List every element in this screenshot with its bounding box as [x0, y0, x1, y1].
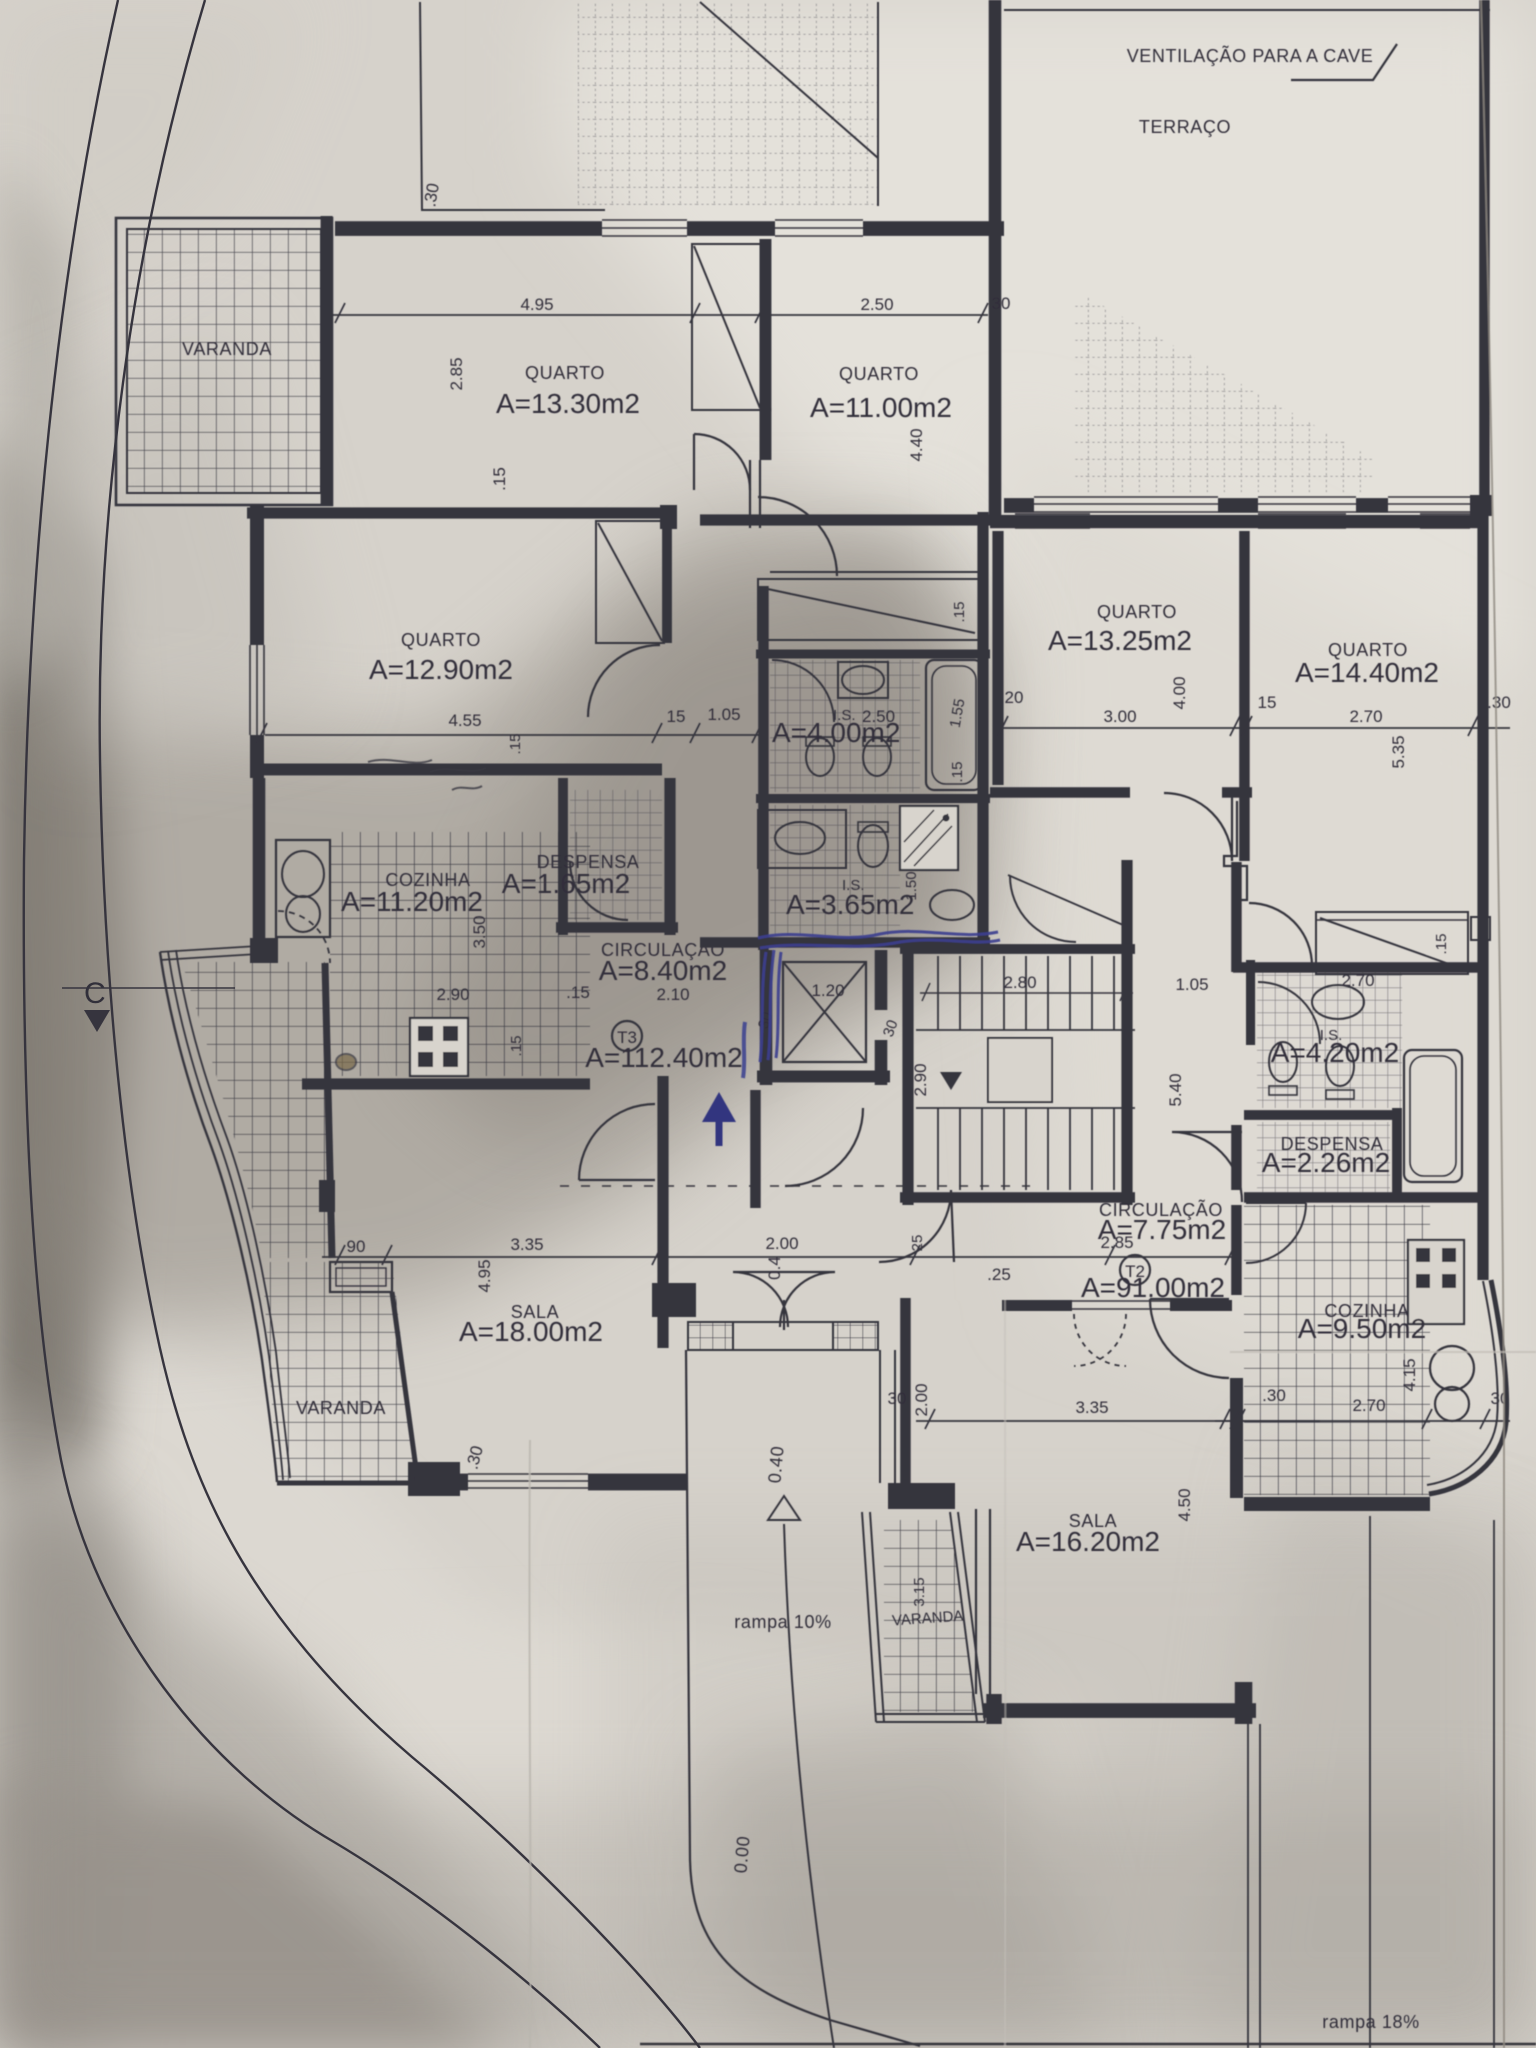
svg-text:2.00: 2.00: [765, 1234, 798, 1253]
svg-text:3.35: 3.35: [1075, 1398, 1108, 1417]
svg-text:20: 20: [1005, 688, 1024, 707]
svg-text:15: 15: [1258, 693, 1277, 712]
svg-text:A=12.90m2: A=12.90m2: [369, 654, 513, 685]
svg-text:2.90: 2.90: [911, 1063, 930, 1096]
svg-text:3.00: 3.00: [1103, 707, 1136, 726]
svg-text:.15: .15: [508, 1036, 525, 1057]
svg-text:.15: .15: [1433, 934, 1450, 955]
svg-text:.30: .30: [1487, 693, 1511, 712]
svg-text:30: 30: [888, 1389, 907, 1408]
svg-text:.15: .15: [490, 467, 509, 491]
svg-text:.15: .15: [507, 734, 524, 755]
svg-text:A=8.40m2: A=8.40m2: [599, 955, 727, 986]
svg-text:A=3.65m2: A=3.65m2: [786, 889, 914, 920]
svg-text:30: 30: [992, 294, 1011, 313]
svg-text:QUARTO: QUARTO: [525, 363, 605, 383]
svg-text:A=13.25m2: A=13.25m2: [1048, 625, 1192, 656]
svg-text:2.70: 2.70: [1352, 1396, 1385, 1415]
svg-text:1.20: 1.20: [811, 981, 844, 1000]
svg-text:A=112.40m2: A=112.40m2: [585, 1042, 743, 1073]
svg-text:2.10: 2.10: [656, 985, 689, 1004]
svg-text:rampa 18%: rampa 18%: [1322, 2012, 1419, 2032]
svg-text:2.70: 2.70: [1349, 707, 1382, 726]
svg-text:QUARTO: QUARTO: [1097, 602, 1177, 622]
svg-text:0.40: 0.40: [764, 1445, 787, 1484]
svg-text:2.00: 2.00: [912, 1383, 931, 1416]
svg-text:TERRAÇO: TERRAÇO: [1139, 117, 1231, 137]
svg-text:2.50: 2.50: [860, 295, 893, 314]
svg-text:3.35: 3.35: [510, 1235, 543, 1254]
svg-text:QUARTO: QUARTO: [401, 630, 481, 650]
svg-text:4.95: 4.95: [475, 1259, 494, 1292]
svg-text:0.00: 0.00: [730, 1835, 753, 1874]
svg-text:A=11.00m2: A=11.00m2: [810, 392, 952, 423]
svg-text:.30: .30: [1262, 1386, 1286, 1405]
svg-text:1.05: 1.05: [1175, 975, 1208, 994]
svg-text:0.4: 0.4: [765, 1256, 784, 1280]
svg-text:5.35: 5.35: [1389, 735, 1408, 768]
svg-text:4.95: 4.95: [520, 295, 553, 314]
svg-text:3.50: 3.50: [470, 915, 489, 948]
svg-text:2.70: 2.70: [1341, 971, 1374, 990]
svg-text:A=4.00m2: A=4.00m2: [772, 717, 900, 748]
svg-text:4.00: 4.00: [1170, 676, 1189, 709]
svg-text:QUARTO: QUARTO: [839, 364, 919, 384]
svg-text:4.40: 4.40: [907, 428, 926, 461]
svg-text:25: 25: [909, 1235, 926, 1252]
svg-text:1.50: 1.50: [903, 871, 920, 900]
svg-text:4.55: 4.55: [448, 711, 481, 730]
svg-text:2.80: 2.80: [1003, 973, 1036, 992]
svg-text:A=13.30m2: A=13.30m2: [496, 388, 640, 419]
svg-text:1.05: 1.05: [707, 705, 740, 724]
svg-text:5.40: 5.40: [1166, 1073, 1185, 1106]
svg-text:2.85: 2.85: [447, 357, 466, 390]
svg-text:15: 15: [667, 707, 686, 726]
svg-text:A=4.20m2: A=4.20m2: [1271, 1037, 1399, 1068]
svg-text:.30: .30: [420, 182, 443, 209]
svg-text:C: C: [84, 977, 106, 1010]
svg-text:.25: .25: [987, 1265, 1011, 1284]
svg-text:VENTILAÇÃO PARA A CAVE: VENTILAÇÃO PARA A CAVE: [1127, 45, 1374, 66]
svg-text:90: 90: [347, 1237, 366, 1256]
svg-text:2.90: 2.90: [436, 985, 469, 1004]
svg-text:rampa 10%: rampa 10%: [734, 1612, 831, 1632]
svg-text:VARANDA: VARANDA: [182, 339, 272, 359]
svg-text:A=1.65m2: A=1.65m2: [502, 868, 630, 899]
svg-text:4.15: 4.15: [1400, 1358, 1419, 1391]
svg-text:A=14.40m2: A=14.40m2: [1295, 657, 1439, 688]
svg-text:2.85: 2.85: [1100, 1233, 1133, 1252]
svg-text:A=11.20m2: A=11.20m2: [341, 886, 483, 917]
svg-text:3.15: 3.15: [911, 1577, 928, 1606]
svg-text:4.50: 4.50: [1175, 1488, 1194, 1521]
svg-text:A=9.50m2: A=9.50m2: [1298, 1313, 1426, 1344]
svg-text:A=2.26m2: A=2.26m2: [1262, 1147, 1390, 1178]
svg-text:A=16.20m2: A=16.20m2: [1016, 1526, 1160, 1557]
svg-text:.15: .15: [949, 762, 966, 783]
svg-text:A=18.00m2: A=18.00m2: [459, 1316, 603, 1347]
svg-text:VARANDA: VARANDA: [296, 1398, 386, 1418]
svg-text:.15: .15: [951, 602, 968, 623]
svg-text:.15: .15: [566, 983, 590, 1002]
